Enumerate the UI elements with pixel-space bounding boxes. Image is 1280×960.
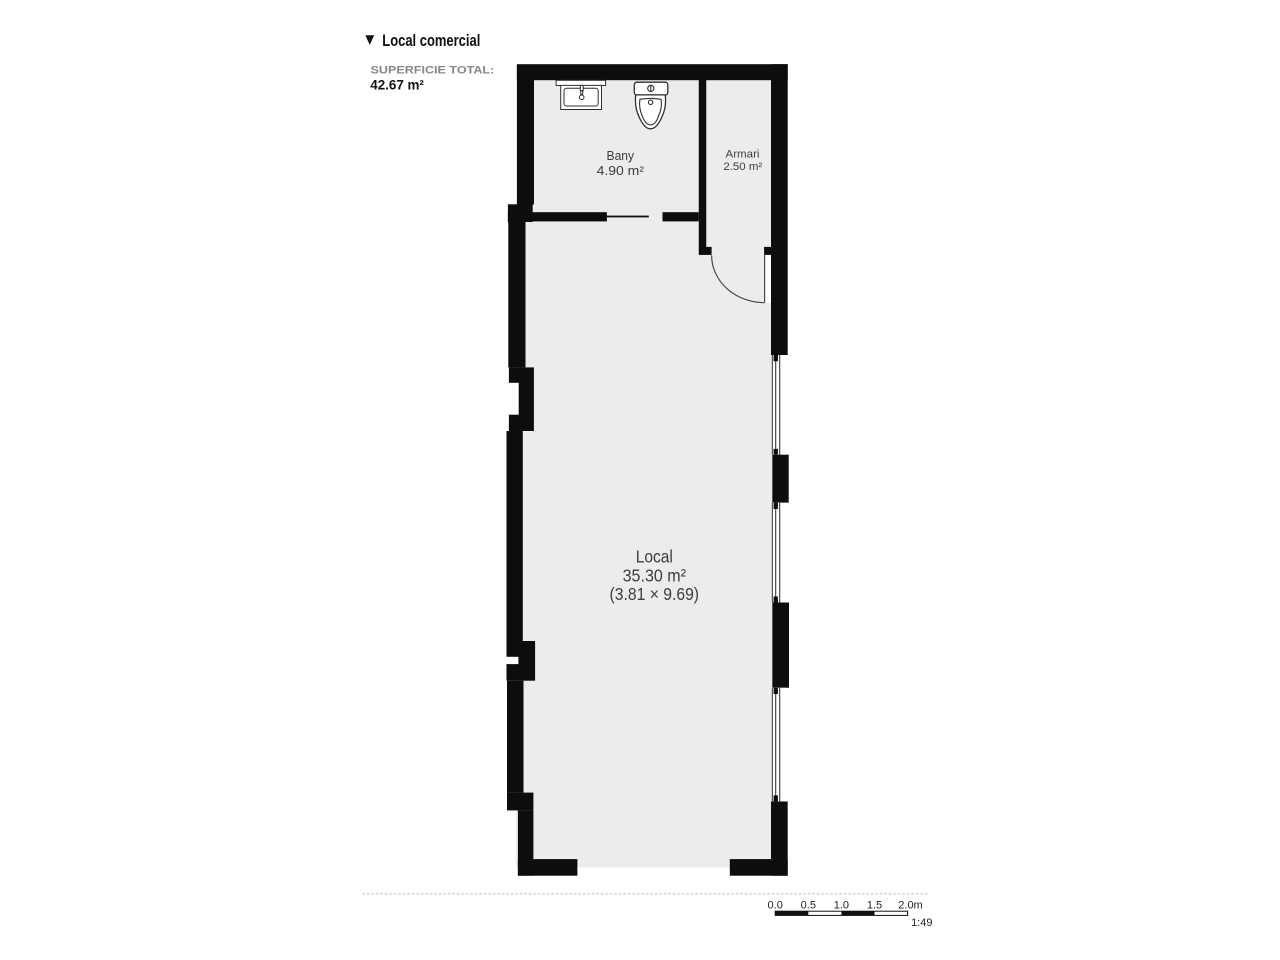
- svg-text:Bany: Bany: [607, 148, 635, 163]
- svg-text:1.0: 1.0: [834, 900, 849, 912]
- svg-text:35.30 m²: 35.30 m²: [623, 566, 686, 586]
- svg-text:2.0m: 2.0m: [898, 900, 922, 912]
- svg-text:0.0: 0.0: [768, 900, 783, 912]
- svg-text:42.67 m²: 42.67 m²: [370, 77, 424, 92]
- svg-text:Local: Local: [636, 547, 673, 567]
- svg-text:(3.81 × 9.69): (3.81 × 9.69): [610, 584, 700, 604]
- svg-text:Local comercial: Local comercial: [382, 32, 480, 50]
- svg-text:1.5: 1.5: [867, 900, 882, 912]
- svg-text:1:49: 1:49: [911, 917, 932, 929]
- svg-text:Armari: Armari: [726, 148, 760, 160]
- svg-text:SUPERFICIE TOTAL:: SUPERFICIE TOTAL:: [371, 65, 495, 77]
- svg-text:4.90 m²: 4.90 m²: [597, 163, 645, 178]
- svg-text:2.50 m²: 2.50 m²: [723, 161, 762, 173]
- svg-text:0.5: 0.5: [801, 900, 816, 912]
